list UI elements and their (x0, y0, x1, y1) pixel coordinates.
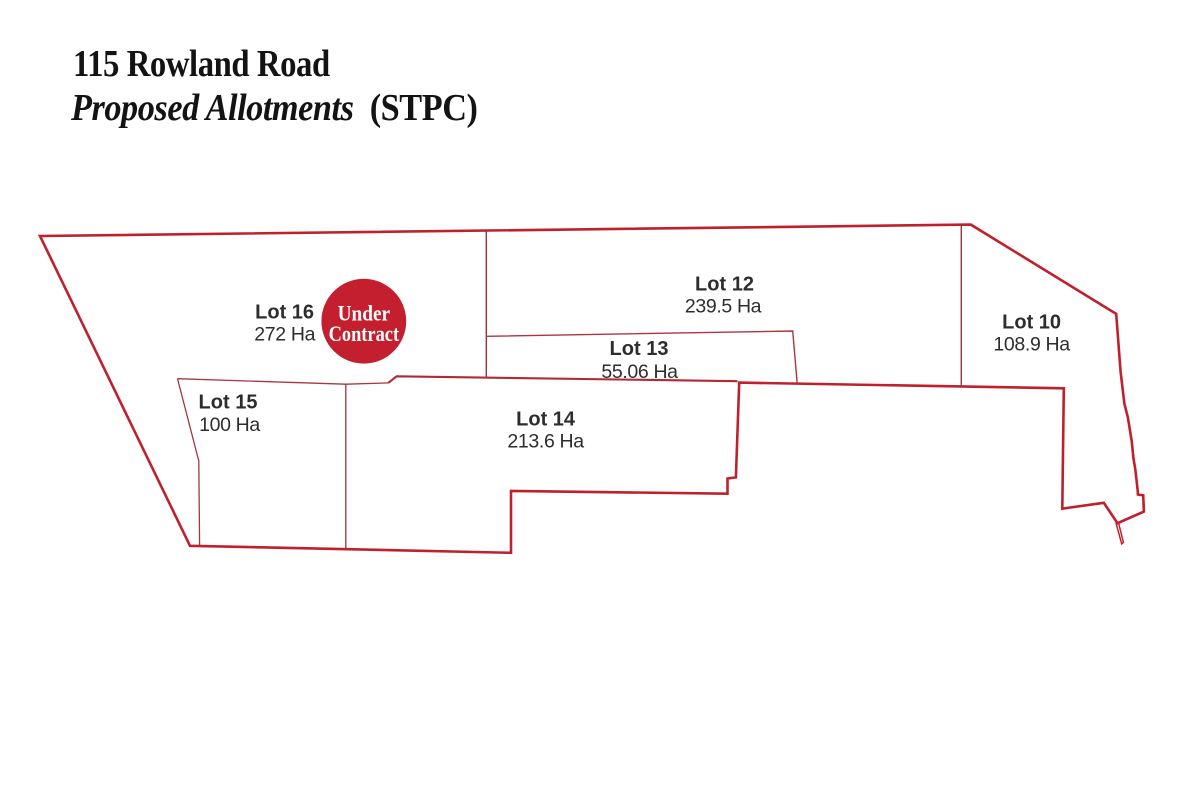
svg-text:213.6 Ha: 213.6 Ha (507, 431, 584, 453)
svg-text:Lot 12: Lot 12 (695, 274, 754, 296)
svg-text:55.06 Ha: 55.06 Ha (601, 361, 678, 383)
svg-text:108.9 Ha: 108.9 Ha (993, 334, 1070, 356)
svg-text:Lot 15: Lot 15 (199, 391, 258, 413)
svg-text:Lot 16: Lot 16 (255, 301, 314, 323)
svg-text:Contract: Contract (329, 321, 400, 346)
svg-text:Lot 14: Lot 14 (516, 409, 576, 431)
svg-text:100 Ha: 100 Ha (199, 414, 260, 436)
svg-text:272 Ha: 272 Ha (254, 324, 315, 346)
svg-text:239.5 Ha: 239.5 Ha (685, 295, 762, 317)
svg-text:Lot 13: Lot 13 (610, 338, 669, 360)
svg-text:Lot 10: Lot 10 (1002, 311, 1061, 333)
